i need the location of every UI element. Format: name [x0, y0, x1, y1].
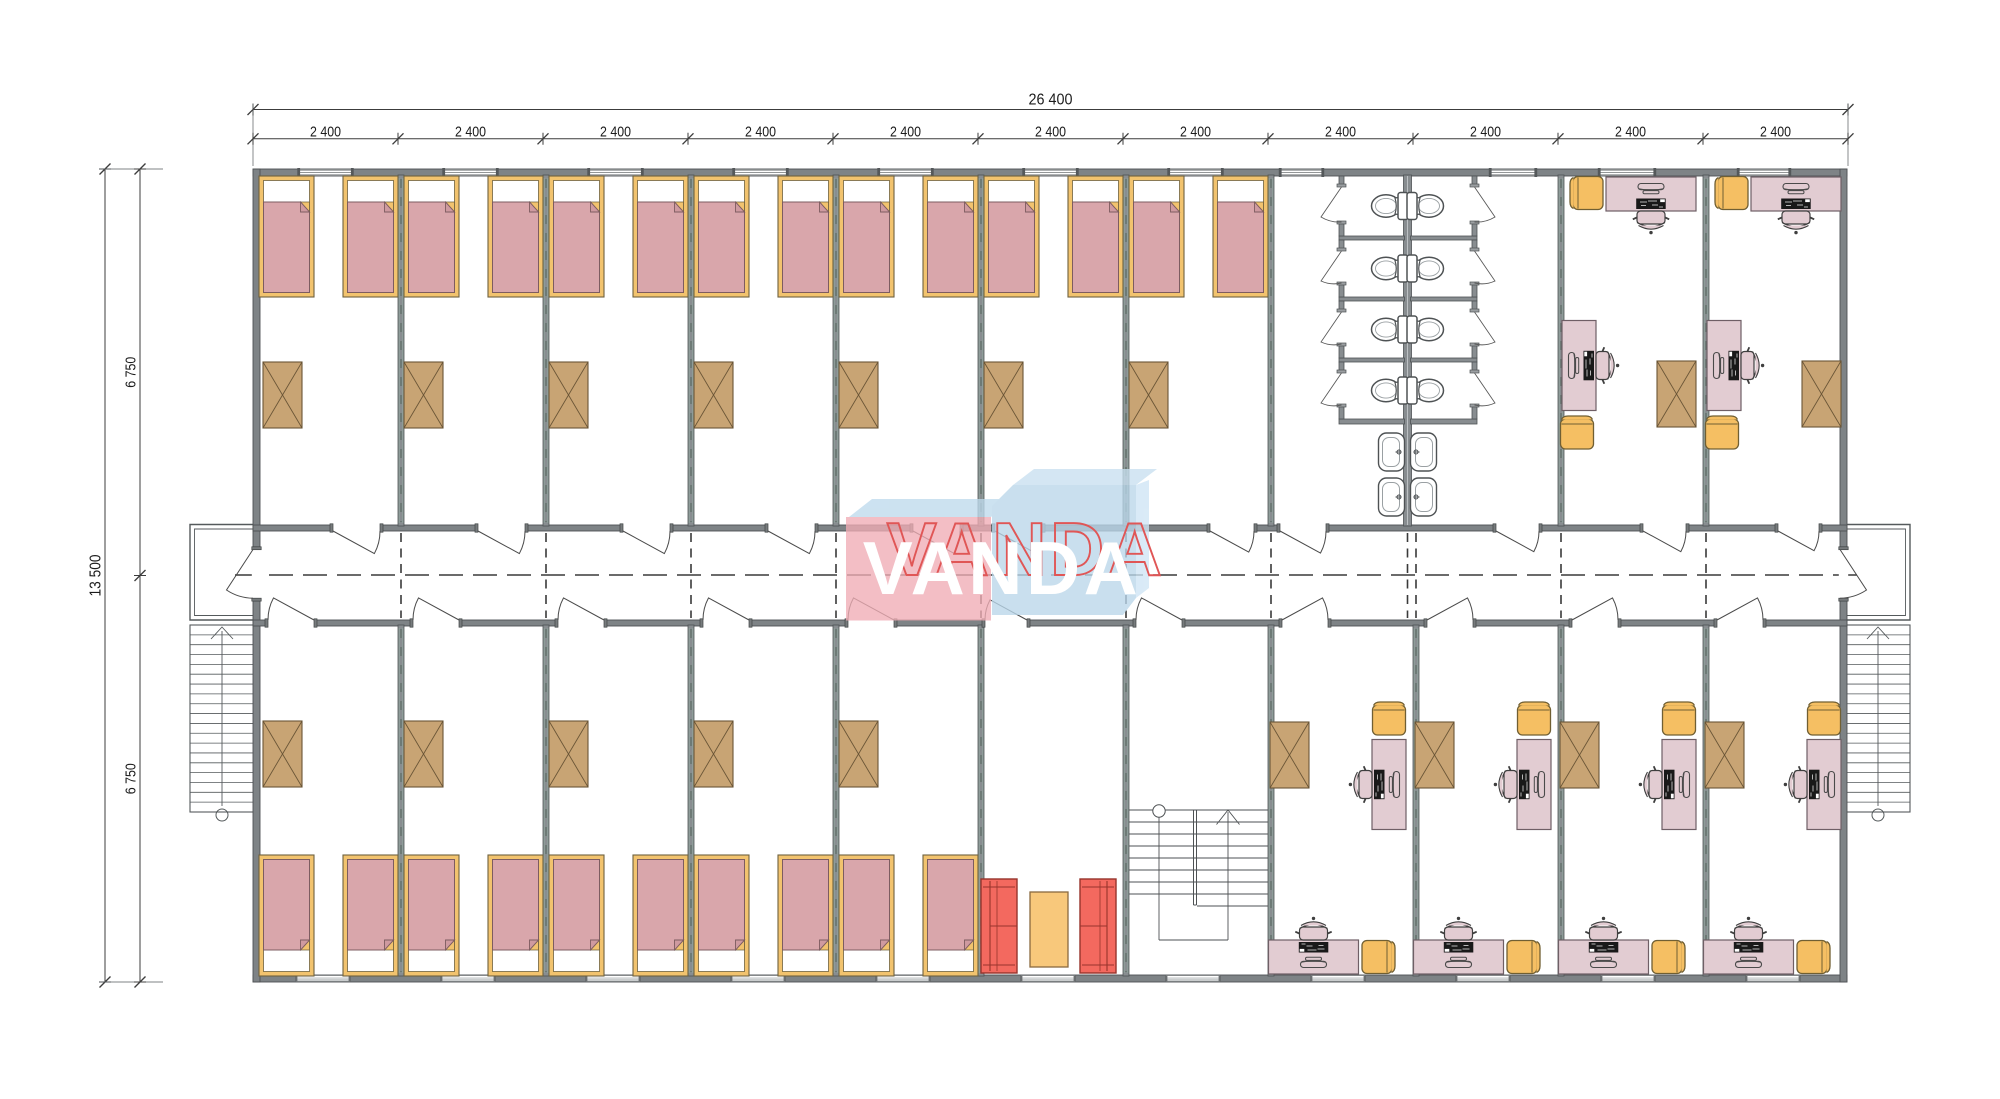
- svg-text:2 400: 2 400: [1325, 123, 1356, 140]
- svg-text:2 400: 2 400: [1035, 123, 1066, 140]
- svg-text:2 400: 2 400: [890, 123, 921, 140]
- svg-text:2 400: 2 400: [600, 123, 631, 140]
- svg-text:2 400: 2 400: [455, 123, 486, 140]
- svg-text:6 750: 6 750: [123, 763, 140, 794]
- svg-text:2 400: 2 400: [1760, 123, 1791, 140]
- svg-text:2 400: 2 400: [1470, 123, 1501, 140]
- svg-text:26 400: 26 400: [1029, 92, 1073, 109]
- svg-text:6 750: 6 750: [123, 357, 140, 388]
- svg-text:2 400: 2 400: [745, 123, 776, 140]
- svg-text:2 400: 2 400: [1615, 123, 1646, 140]
- svg-text:2 400: 2 400: [1180, 123, 1211, 140]
- svg-text:13 500: 13 500: [88, 554, 105, 596]
- svg-text:2 400: 2 400: [310, 123, 341, 140]
- svg-text:VANDA: VANDA: [863, 526, 1142, 610]
